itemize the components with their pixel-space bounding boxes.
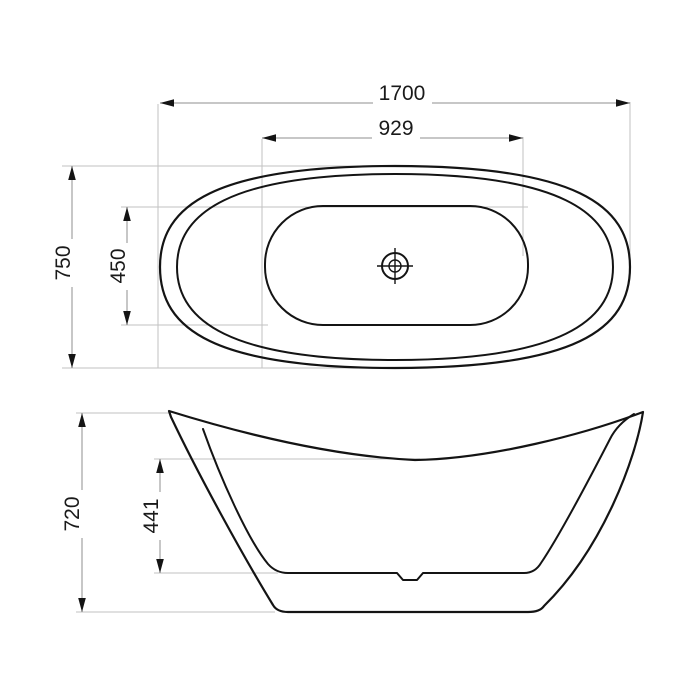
side-view: 720 441	[61, 411, 643, 612]
top-view-extension-lines	[62, 102, 630, 368]
arrowhead-down-icon	[123, 311, 131, 325]
arrowhead-up-icon	[123, 207, 131, 221]
arrowhead-up-icon	[78, 413, 86, 427]
dim-label-inner-width: 450	[107, 248, 130, 283]
arrowhead-down-icon	[68, 354, 76, 368]
drain-symbol	[377, 248, 413, 284]
top-view: 1700 929 750	[52, 82, 630, 368]
arrowhead-up-icon	[68, 166, 76, 180]
arrowhead-down-icon	[156, 559, 164, 573]
arrowhead-right-icon	[509, 134, 523, 142]
dim-overall-width: 750	[52, 166, 76, 368]
dim-label-overall-height: 720	[61, 496, 84, 531]
arrowhead-right-icon	[616, 99, 630, 107]
arrowhead-down-icon	[78, 598, 86, 612]
arrowhead-up-icon	[156, 459, 164, 473]
side-view-extension-lines	[76, 413, 420, 612]
dim-inner-length: 929	[262, 117, 523, 142]
side-view-outline	[169, 411, 643, 612]
drawing-page: 1700 929 750	[0, 0, 700, 700]
dim-label-overall-width: 750	[52, 245, 75, 280]
dim-overall-height: 720	[61, 413, 86, 612]
arrowhead-left-icon	[262, 134, 276, 142]
bathtub-dimension-diagram: 1700 929 750	[0, 0, 700, 700]
dim-label-inner-depth: 441	[140, 498, 163, 533]
arrowhead-left-icon	[160, 99, 174, 107]
dim-inner-depth: 441	[140, 459, 164, 573]
dim-label-overall-length: 1700	[379, 82, 426, 105]
dim-label-inner-length: 929	[378, 117, 413, 140]
dim-inner-width: 450	[107, 207, 131, 325]
top-view-outline	[160, 166, 630, 368]
dim-overall-length: 1700	[160, 82, 630, 107]
